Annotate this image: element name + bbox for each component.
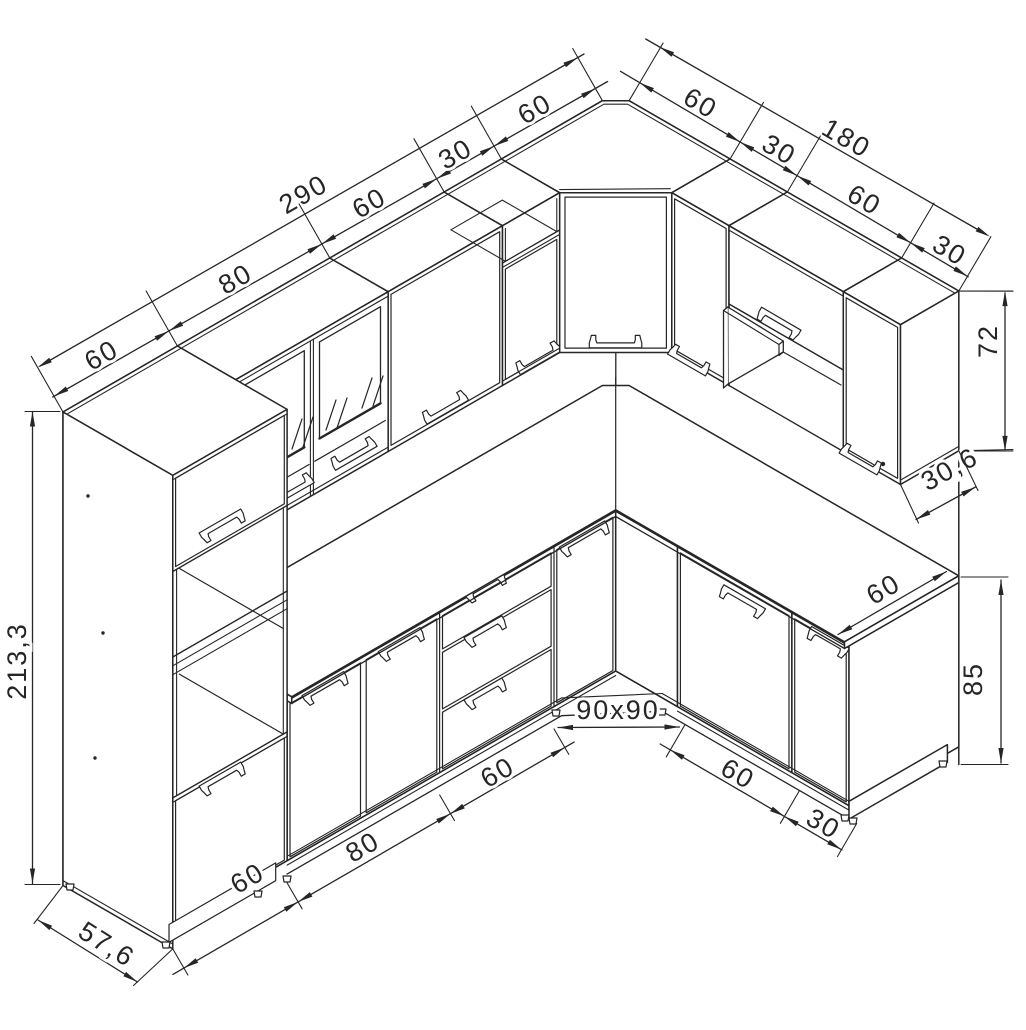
svg-text:85: 85 — [958, 662, 988, 696]
svg-text:90x90: 90x90 — [576, 695, 660, 725]
svg-text:213,3: 213,3 — [2, 622, 32, 700]
svg-text:72: 72 — [973, 324, 1003, 358]
